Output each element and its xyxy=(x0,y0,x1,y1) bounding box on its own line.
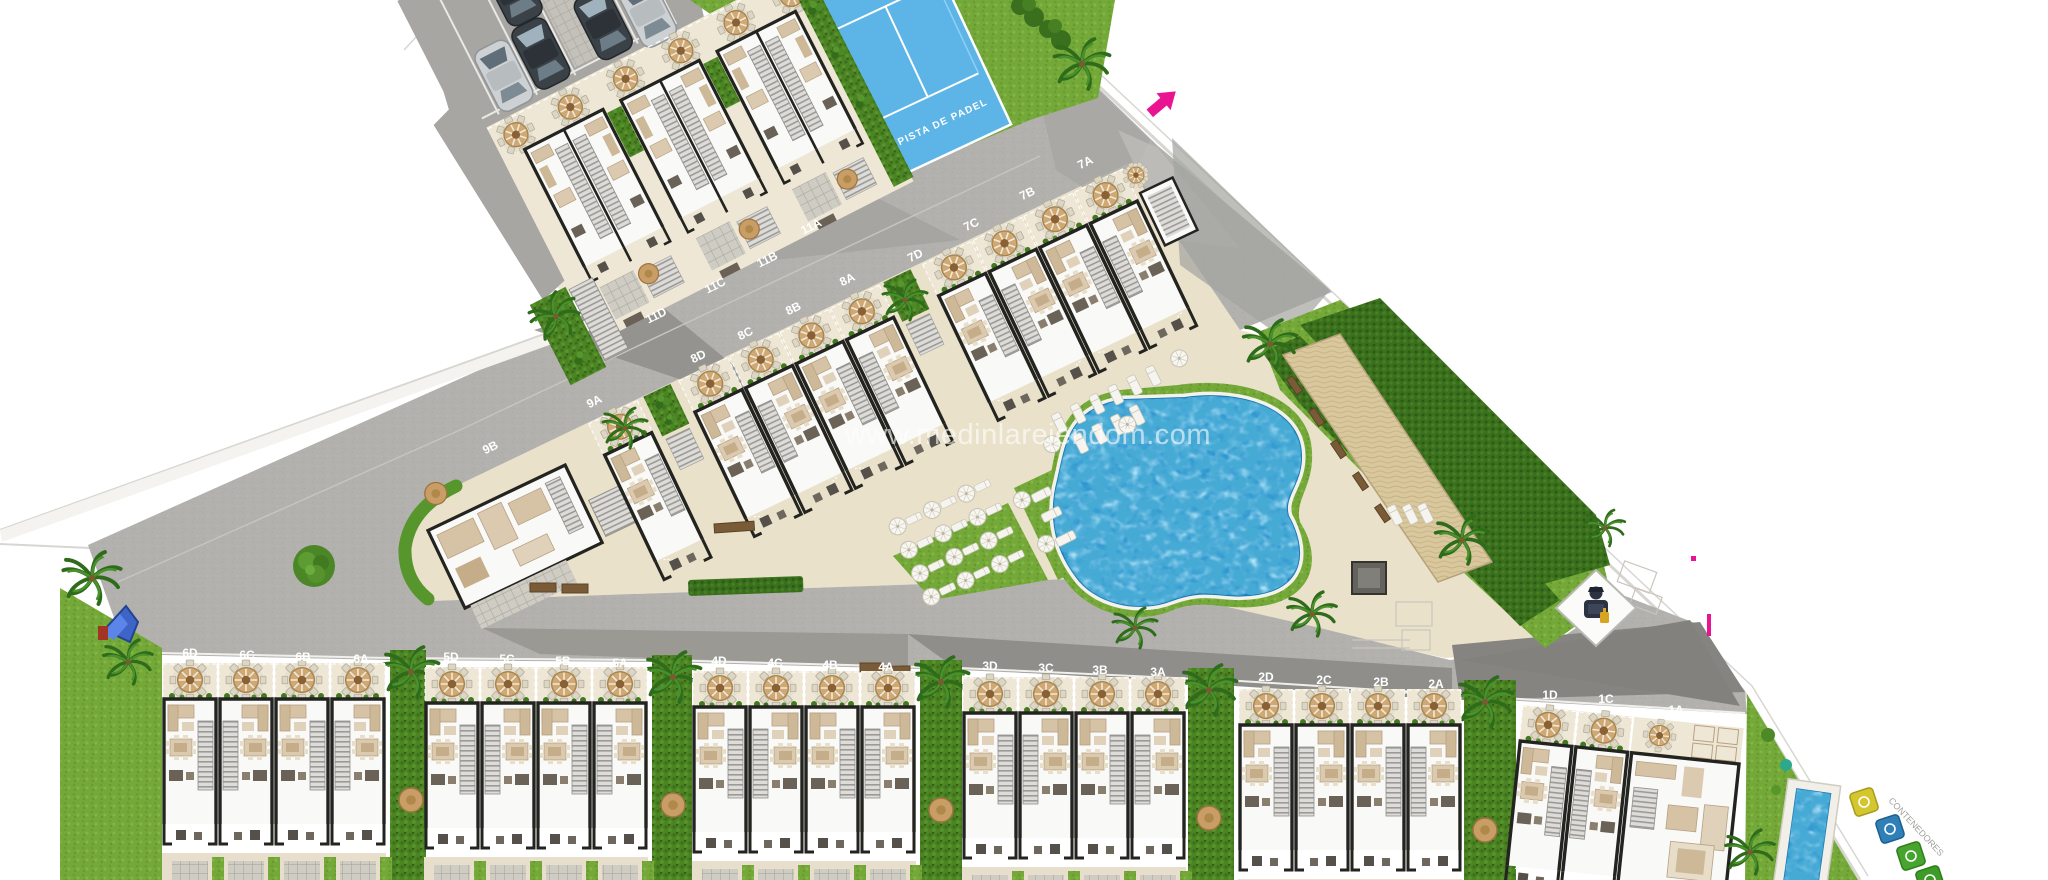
svg-text:2B: 2B xyxy=(1373,675,1389,689)
svg-text:5C: 5C xyxy=(499,652,515,666)
svg-text:4A: 4A xyxy=(878,660,894,674)
svg-text:3A: 3A xyxy=(1150,665,1166,679)
svg-text:3D: 3D xyxy=(982,659,998,673)
svg-text:6C: 6C xyxy=(239,648,255,662)
svg-text:4D: 4D xyxy=(711,654,727,668)
svg-text:5B: 5B xyxy=(555,654,571,668)
svg-text:2D: 2D xyxy=(1258,670,1274,684)
svg-text:6D: 6D xyxy=(182,646,198,660)
svg-text:1D: 1D xyxy=(1542,688,1558,702)
svg-text:2A: 2A xyxy=(1428,677,1444,691)
svg-text:2C: 2C xyxy=(1316,673,1332,687)
svg-text:5A: 5A xyxy=(612,656,628,670)
svg-text:4B: 4B xyxy=(822,658,838,672)
svg-text:1A: 1A xyxy=(1668,703,1684,717)
svg-text:5D: 5D xyxy=(443,650,459,664)
svg-text:1C: 1C xyxy=(1598,692,1614,706)
svg-text:www.medinlarejendom.com: www.medinlarejendom.com xyxy=(844,419,1211,451)
svg-text:3C: 3C xyxy=(1038,661,1054,675)
svg-text:6A: 6A xyxy=(353,652,369,666)
svg-text:3B: 3B xyxy=(1092,663,1108,677)
svg-text:4C: 4C xyxy=(767,656,783,670)
svg-text:6B: 6B xyxy=(295,650,311,664)
